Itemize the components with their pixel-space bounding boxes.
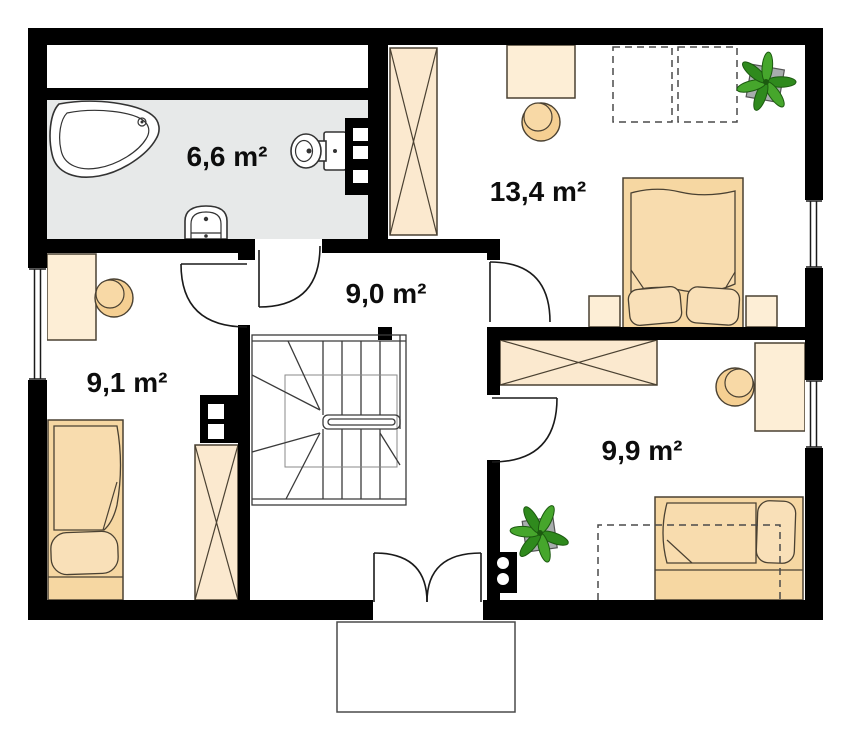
staircase-icon <box>252 335 406 505</box>
nightstand <box>589 296 620 327</box>
plant-icon <box>510 504 570 564</box>
washbasin-icon <box>185 206 227 239</box>
wall-segment <box>487 340 500 395</box>
room-area-label: 9,0 m² <box>346 278 427 309</box>
room-area-label: 9,9 m² <box>602 435 683 466</box>
double-balcony-door <box>374 553 481 602</box>
wardrobe-icon <box>195 445 238 600</box>
wall-segment <box>487 327 805 340</box>
floor-plan-canvas: 6,6 m² 13,4 m² 9,0 m² 9,1 m² 9,9 m² <box>0 0 851 739</box>
window <box>805 200 823 268</box>
room-area-label: 6,6 m² <box>187 141 268 172</box>
single-bed-icon <box>655 497 803 600</box>
wall-segment <box>47 88 372 100</box>
installation-shaft <box>345 118 377 195</box>
chair-icon <box>716 368 754 406</box>
wall-segment <box>805 268 823 380</box>
desk <box>507 45 575 98</box>
desk <box>755 343 805 431</box>
window <box>805 380 823 448</box>
wall-segment <box>28 380 47 600</box>
nightstand <box>746 296 777 327</box>
wall-segment <box>238 239 255 260</box>
wall-segment <box>378 327 392 340</box>
wall-segment <box>47 239 238 253</box>
balcony-outline <box>337 622 515 712</box>
chair-icon <box>522 103 560 141</box>
wardrobe-icon <box>500 340 657 385</box>
window <box>28 268 47 380</box>
wall-segment <box>322 239 500 253</box>
wall-segment <box>483 600 823 620</box>
wall-segment <box>805 28 823 200</box>
wardrobe-icon <box>390 48 437 235</box>
roof-window-dashed <box>678 47 737 122</box>
room-area-label: 9,1 m² <box>87 367 168 398</box>
room-area-label: 13,4 m² <box>490 176 587 207</box>
installation-shaft <box>488 552 517 593</box>
wall-segment <box>28 600 373 620</box>
roof-window-dashed <box>613 47 672 122</box>
wall-segment <box>805 448 823 600</box>
door-swing <box>490 262 550 322</box>
wall-segment <box>238 325 250 600</box>
door-swing <box>181 264 247 327</box>
door-swing <box>259 246 320 307</box>
wall-segment <box>28 28 47 268</box>
double-bed-icon <box>623 178 743 328</box>
floor-plan: 6,6 m² 13,4 m² 9,0 m² 9,1 m² 9,9 m² <box>0 0 851 739</box>
door-swing <box>492 398 557 462</box>
wall-segment <box>28 28 823 45</box>
wall-segment <box>487 239 500 260</box>
single-bed-icon <box>48 420 123 600</box>
installation-shaft <box>200 395 238 443</box>
desk <box>47 254 96 340</box>
chair-icon <box>95 279 133 317</box>
plant-icon <box>736 52 796 112</box>
